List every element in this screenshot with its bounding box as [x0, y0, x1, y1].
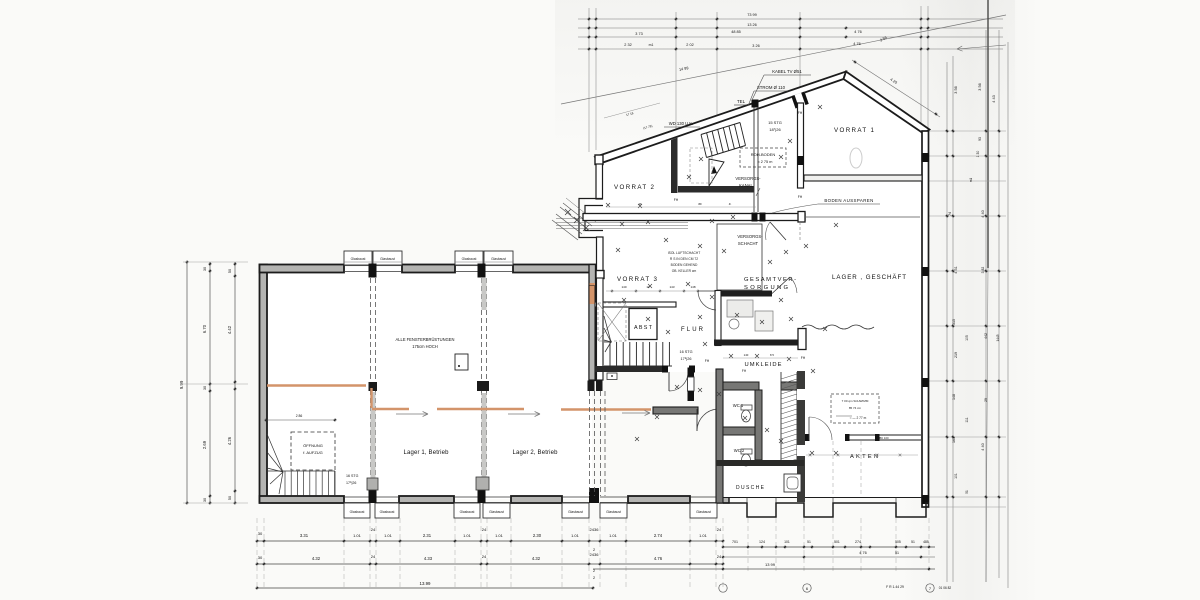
svg-text:3 26: 3 26	[752, 44, 759, 48]
svg-text:2.69: 2.69	[202, 440, 207, 449]
svg-text:50: 50	[228, 269, 232, 273]
svg-text:Lager 1, Betrieb: Lager 1, Betrieb	[404, 450, 450, 456]
svg-text:111: 111	[965, 417, 969, 422]
svg-text:1445: 1445	[996, 334, 1000, 341]
svg-text:KANAL: KANAL	[739, 183, 753, 188]
svg-text:24: 24	[717, 554, 722, 559]
svg-text:13.99: 13.99	[420, 581, 432, 586]
svg-text:Glasbaust: Glasbaust	[606, 510, 621, 514]
svg-text:15 STG: 15 STG	[768, 120, 782, 125]
svg-text:143: 143	[669, 285, 674, 289]
svg-text:1.01: 1.01	[609, 533, 618, 538]
svg-text:51: 51	[965, 490, 969, 494]
svg-text:R S IN DEN CM 72: R S IN DEN CM 72	[670, 257, 698, 261]
svg-text:1 30: 1 30	[976, 151, 980, 158]
svg-text:WC 1: WC 1	[733, 403, 744, 408]
svg-text:LAGER , GESCHÄFT: LAGER , GESCHÄFT	[832, 274, 906, 281]
svg-text:3.31: 3.31	[300, 533, 309, 538]
svg-text:VORRAT 1: VORRAT 1	[834, 127, 875, 134]
svg-text:4 76: 4 76	[859, 551, 866, 555]
svg-text:219: 219	[954, 352, 958, 358]
svg-text:1.01: 1.01	[463, 533, 472, 538]
svg-text:2.30: 2.30	[533, 533, 542, 538]
svg-text:01 06 82: 01 06 82	[939, 586, 952, 590]
svg-text:Glasbaust: Glasbaust	[460, 510, 475, 514]
svg-text:BK 100: BK 100	[879, 436, 889, 440]
svg-text:8 5: 8 5	[770, 353, 774, 357]
svg-text:DUSCHE: DUSCHE	[736, 485, 765, 491]
svg-text:51: 51	[807, 540, 811, 544]
svg-text:Glasbaust: Glasbaust	[696, 510, 711, 514]
svg-text:93: 93	[978, 137, 982, 141]
svg-text:FLUR: FLUR	[681, 327, 704, 333]
svg-text:Glasbaust: Glasbaust	[380, 510, 395, 514]
svg-text:KABEL TV Ø51: KABEL TV Ø51	[772, 69, 802, 74]
svg-text:BODEN GEHEND: BODEN GEHEND	[671, 263, 698, 267]
svg-text:48 85: 48 85	[731, 30, 741, 34]
svg-text:13 26: 13 26	[747, 23, 757, 27]
svg-text:FH: FH	[674, 198, 679, 202]
svg-text:73 99: 73 99	[747, 13, 757, 17]
svg-text:FH: FH	[705, 359, 710, 363]
svg-text:105: 105	[965, 335, 969, 341]
svg-text:FH: FH	[801, 356, 806, 360]
svg-text:30: 30	[258, 555, 263, 560]
svg-text:17⁵|26: 17⁵|26	[680, 357, 691, 361]
svg-text:GESAMTVER-: GESAMTVER-	[744, 277, 796, 283]
svg-text:140: 140	[621, 285, 626, 289]
svg-text:3 56: 3 56	[978, 83, 982, 90]
svg-text:2 02: 2 02	[686, 43, 693, 47]
svg-text:Glasbaust: Glasbaust	[568, 510, 583, 514]
svg-text:SCHACHT: SCHACHT	[738, 241, 759, 246]
svg-text:4.42: 4.42	[227, 325, 232, 334]
svg-text:OB. KELLER cm: OB. KELLER cm	[672, 269, 697, 273]
svg-text:4.33: 4.33	[424, 556, 433, 561]
svg-text:TEL: TEL	[737, 99, 746, 104]
svg-text:4 40: 4 40	[981, 443, 985, 450]
svg-text:74: 74	[948, 212, 952, 216]
svg-text:4 51: 4 51	[954, 266, 958, 273]
svg-text:Glasbaust: Glasbaust	[489, 510, 504, 514]
svg-text:3 56: 3 56	[954, 86, 958, 93]
svg-text:Glasbaust: Glasbaust	[462, 257, 477, 261]
svg-text:4 40: 4 40	[981, 210, 985, 217]
svg-text:24: 24	[371, 527, 376, 532]
svg-text:7 00 qm SCHWIMM: 7 00 qm SCHWIMM	[842, 399, 869, 403]
svg-text:1.01: 1.01	[699, 533, 708, 538]
svg-text:2 86: 2 86	[296, 414, 303, 418]
svg-text:51: 51	[911, 540, 915, 544]
svg-text:3 82: 3 82	[981, 267, 985, 274]
svg-text:ISOL LUFTSCHACHT: ISOL LUFTSCHACHT	[668, 251, 700, 255]
svg-text:FH: FH	[742, 369, 747, 373]
svg-text:315: 315	[952, 319, 956, 325]
svg-text:Glasbaust: Glasbaust	[350, 510, 365, 514]
svg-text:≈ — 2 77 m: ≈ — 2 77 m	[850, 416, 867, 420]
svg-text:1.01: 1.01	[353, 533, 362, 538]
svg-text:f. AUFZUG: f. AUFZUG	[303, 450, 323, 455]
svg-text:STROM Ø 110: STROM Ø 110	[757, 85, 786, 90]
svg-text:16 STG: 16 STG	[679, 350, 692, 354]
svg-text:18⁷|26: 18⁷|26	[769, 127, 781, 132]
svg-text:FH: FH	[798, 111, 803, 115]
svg-text:VERSORGS-: VERSORGS-	[737, 234, 763, 239]
svg-text:m1: m1	[969, 178, 973, 183]
svg-text:24: 24	[482, 554, 487, 559]
svg-text:140: 140	[744, 353, 749, 357]
svg-text:UMKLEIDE: UMKLEIDE	[745, 362, 782, 368]
svg-text:101: 101	[784, 540, 790, 544]
svg-text:101: 101	[954, 473, 958, 479]
svg-text:148: 148	[690, 285, 695, 289]
svg-text:ALLE FENSTERBRÜSTUNGEN: ALLE FENSTERBRÜSTUNGEN	[396, 337, 455, 342]
svg-text:12: 12	[646, 285, 650, 289]
svg-text:175cm HOCH: 175cm HOCH	[412, 344, 438, 349]
svg-text:F R 1.44 29: F R 1.44 29	[886, 585, 904, 589]
svg-text:505: 505	[895, 540, 901, 544]
svg-text:VORRAT 3: VORRAT 3	[617, 276, 658, 283]
svg-text:1.01: 1.01	[495, 533, 504, 538]
svg-text:2 32: 2 32	[624, 43, 631, 47]
svg-text:163: 163	[952, 437, 956, 443]
svg-text:701: 701	[732, 540, 738, 544]
svg-text:24: 24	[717, 527, 722, 532]
svg-text:Glasbaust: Glasbaust	[351, 257, 366, 261]
svg-text:4.76: 4.76	[654, 556, 663, 561]
svg-text:2: 2	[593, 576, 595, 580]
svg-text:≈ 2 75 m: ≈ 2 75 m	[758, 160, 773, 164]
svg-text:24: 24	[371, 554, 376, 559]
svg-text:ÖFFNUNG: ÖFFNUNG	[303, 443, 323, 448]
svg-text:4.26: 4.26	[227, 436, 232, 445]
svg-text:30: 30	[203, 498, 207, 502]
svg-text:30: 30	[203, 267, 207, 271]
svg-text:1.01: 1.01	[571, 533, 580, 538]
svg-text:4.32: 4.32	[532, 556, 541, 561]
svg-text:442: 442	[984, 333, 988, 339]
svg-text:VORRAT 2: VORRAT 2	[614, 184, 655, 191]
svg-text:501: 501	[834, 540, 840, 544]
svg-text:85 74 cm: 85 74 cm	[849, 406, 862, 410]
svg-text:4 43: 4 43	[992, 95, 996, 102]
svg-text:BODEN AUSSPAREN: BODEN AUSSPAREN	[824, 198, 873, 203]
svg-text:274: 274	[855, 540, 861, 544]
svg-text:4 76: 4 76	[854, 30, 861, 34]
svg-text:FH: FH	[798, 195, 803, 199]
svg-text:ROH-BODEN: ROH-BODEN	[751, 152, 776, 157]
svg-text:2436: 2436	[590, 527, 600, 532]
svg-text:9.99: 9.99	[179, 380, 184, 389]
svg-text:30: 30	[258, 531, 263, 536]
svg-text:4.32: 4.32	[312, 556, 321, 561]
svg-text:VERSORGS-: VERSORGS-	[735, 176, 761, 181]
svg-text:46: 46	[638, 202, 642, 206]
svg-text:17⁵|26: 17⁵|26	[346, 481, 356, 485]
svg-text:485: 485	[923, 540, 929, 544]
svg-text:WD 130 U.K.: WD 130 U.K.	[669, 121, 693, 126]
svg-text:24: 24	[482, 527, 487, 532]
svg-text:4 76: 4 76	[853, 42, 860, 46]
svg-text:50: 50	[228, 496, 232, 500]
svg-text:6.70: 6.70	[202, 324, 207, 333]
svg-text:ABST: ABST	[634, 325, 653, 331]
svg-text:Glasbaust: Glasbaust	[491, 257, 506, 261]
svg-text:3 73: 3 73	[635, 32, 642, 36]
svg-text:13 99: 13 99	[765, 562, 776, 567]
svg-text:1.01: 1.01	[384, 533, 393, 538]
svg-text:148: 148	[952, 394, 956, 400]
svg-text:16 STG: 16 STG	[346, 474, 359, 478]
svg-text:2: 2	[593, 569, 595, 573]
svg-text:30: 30	[203, 386, 207, 390]
svg-text:45¹: 45¹	[698, 202, 702, 206]
svg-text:29: 29	[984, 398, 988, 402]
svg-text:124: 124	[759, 540, 765, 544]
svg-text:2436: 2436	[590, 552, 600, 557]
svg-text:2.31: 2.31	[423, 533, 432, 538]
svg-text:Glasbaust: Glasbaust	[380, 257, 395, 261]
svg-text:Lager 2, Betrieb: Lager 2, Betrieb	[513, 450, 559, 456]
svg-text:51: 51	[895, 551, 899, 555]
svg-text:m1: m1	[649, 43, 654, 47]
svg-text:2.74: 2.74	[654, 533, 663, 538]
svg-text:4¹: 4¹	[729, 202, 732, 206]
